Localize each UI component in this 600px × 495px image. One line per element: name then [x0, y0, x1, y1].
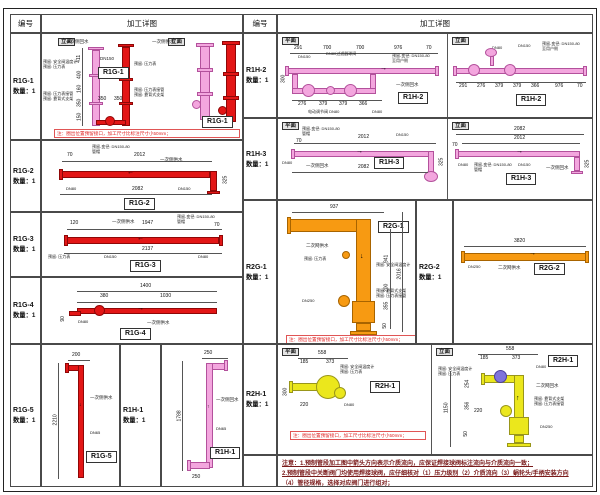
dimension-text: 50 [383, 323, 389, 329]
part-qty: 数量：1 [246, 159, 276, 168]
valve-icon [326, 86, 335, 95]
part-number-box: R1H-2 [516, 94, 546, 106]
dimension-text: 366 [359, 102, 367, 108]
flange-icon [453, 66, 457, 76]
pipe-segment [78, 365, 84, 478]
dimension-text: 379 [319, 102, 327, 108]
annotation-label: DN150 [518, 163, 530, 168]
note-line-2: 2.预制管段中关断阀门均使用焊接球阀，应仔细核对（1）压力级别（2）介质流向（3… [282, 469, 588, 479]
flow-arrow-icon: → [529, 250, 536, 258]
pipe-segment [514, 435, 524, 443]
flange-icon [223, 72, 239, 76]
dimension-text: 2082 [132, 187, 143, 193]
part-id: R1H-3 [246, 151, 276, 158]
dimension-line [447, 119, 448, 200]
part-id: R1G-3 [13, 236, 40, 243]
dimension-text: 350 [98, 97, 106, 103]
part-id: R1G-2 [13, 168, 40, 175]
dimension-text: 325 [223, 176, 229, 184]
drawing-sheet: 编号 加工详图 编号 加工详图 R1G-1 数量：1 立面立面一次侧回水一次侧供… [0, 0, 600, 495]
annotation-label: 电动调节阀 DN80 [308, 110, 339, 115]
dimension-text: 70 [426, 46, 432, 52]
annotation-label: 一次侧供水 [160, 157, 183, 162]
header-no-right: 编号 [243, 14, 277, 33]
pipe-segment [509, 417, 529, 435]
dimension-line [456, 82, 586, 83]
part-id: R2H-1 [246, 391, 276, 398]
flange-icon [64, 235, 68, 246]
dimension-line [62, 161, 212, 162]
part-number-box: R2G-2 [534, 263, 565, 275]
warning-note: 注：圈出位置预留接口，加工尺寸比标注尺寸小50mm； [54, 129, 240, 138]
flow-arrow-icon: ↑ [207, 405, 210, 411]
valve-icon [500, 405, 512, 417]
part-qty: 数量：1 [13, 244, 40, 253]
dimension-text: 400 [77, 71, 83, 79]
row-label-r1h1: R1H-1 数量：1 [120, 344, 161, 487]
dimension-text: 276 [298, 102, 306, 108]
warning-note: 注：圈出位置预留接口，加工尺寸比标注尺寸小50mm； [286, 335, 416, 344]
dimension-text: 1947 [142, 221, 153, 227]
dimension-text: DN80 [66, 187, 76, 192]
part-qty: 数量：1 [13, 176, 40, 185]
view-tag: 平面 [282, 122, 299, 130]
dimension-text: DN80 [78, 320, 88, 325]
row-label-r1g4: R1G-4 数量：1 [10, 277, 41, 344]
dimension-text: 558 [318, 351, 326, 357]
flow-arrow-icon: ↑ [516, 395, 520, 403]
annotation-label: 预留-变径: DN150-80 管帽 [177, 215, 215, 224]
dimension-text: 2082 [514, 127, 525, 133]
dimension-text: 250 [192, 475, 200, 481]
flange-icon [435, 66, 439, 76]
pipe-segment [294, 151, 434, 157]
annotation-label: 预留: 靠背式支架 预留: 压力表接管 [534, 397, 564, 406]
part-qty: 数量：1 [13, 86, 40, 95]
dimension-text: 700 [356, 46, 364, 52]
valve-icon [105, 116, 115, 126]
flange-icon [118, 44, 134, 47]
pipe-segment [69, 311, 81, 316]
dimension-text: 70 [214, 223, 220, 229]
part-id: R1H-1 [123, 407, 160, 414]
valve-icon [218, 106, 227, 115]
part-qty: 数量：1 [246, 272, 276, 281]
row-label-r1h3: R1H-3 数量：1 [243, 118, 277, 200]
dimension-text: 373 [326, 360, 334, 366]
dimension-text: 200 [72, 353, 80, 359]
flange-icon [223, 96, 239, 100]
part-number-box: R2G-1 [378, 221, 409, 233]
annotation-label: 一次侧供水 [147, 320, 170, 325]
pipe-segment [464, 253, 586, 261]
part-number-box: R1G-1 [98, 67, 129, 79]
annotation-label: 预留: 压力表 [304, 257, 326, 262]
valve-icon [192, 100, 201, 109]
dimension-text: 2012 [134, 153, 145, 159]
dimension-text: 941 [384, 255, 390, 263]
flange-icon [65, 363, 69, 373]
row-label-r2g2: R2G-2 数量：1 [416, 200, 453, 344]
dimension-text: 2082 [358, 165, 369, 171]
dimension-line [292, 212, 384, 213]
dimension-text: 1788 [178, 410, 184, 421]
flange-icon [224, 360, 228, 371]
dimension-text: DN150 [178, 187, 190, 192]
annotation-label: 一次侧供水 [152, 39, 175, 44]
dimension-text: 300 [283, 388, 289, 396]
detail-cell-r2h1: 平面558185373预留: 安全阀温度计 预留: 压力表300220DN80R… [277, 344, 593, 455]
flange-icon [222, 41, 240, 45]
part-qty: 数量：1 [246, 75, 276, 84]
part-number-box: R1G-4 [120, 328, 151, 340]
part-qty: 数量：1 [13, 415, 40, 424]
valve-icon [94, 305, 105, 316]
dimension-text: 355 [384, 302, 390, 310]
annotation-label: 一次侧供水 [90, 395, 113, 400]
dimension-text: 160 [77, 85, 83, 93]
pipe-segment [210, 171, 217, 191]
annotation-label: DN250 [540, 425, 552, 430]
annotation-label: 预留: 压力表 [48, 255, 70, 260]
annotation-label: 一次侧回水 [66, 39, 89, 44]
dimension-text: 379 [495, 84, 503, 90]
valve-icon [468, 64, 480, 76]
dimension-text: 185 [480, 356, 488, 362]
part-number-box: R1G-1 [202, 116, 233, 128]
flow-arrow-icon: → [516, 148, 523, 156]
annotation-label: 一次侧供水 [112, 219, 135, 224]
dimension-text: DN150 [104, 255, 116, 260]
notes-empty-cell [243, 455, 277, 487]
general-notes: 注意：1.预制管段加工图中箭头方向表示介质流向，应保证焊接球阀标注流向与介质流向… [277, 455, 593, 487]
annotation-label: 预留: 压力表接管 预留: 靠背式支架 [43, 92, 73, 101]
view-tag: 立面 [436, 348, 453, 356]
annotation-label: DN80过滤器球阀 [326, 52, 356, 57]
detail-cell-r1g3: 120194770预留-变径: DN150-80 管帽一次侧供水←预留: 压力表… [41, 212, 243, 277]
dimension-text: 350 [77, 99, 83, 107]
part-number-box: R1G-3 [130, 260, 161, 272]
detail-cell-r1g2: 预留-变径: DN150-80 管帽702012←一次侧供水DN802082DN… [41, 140, 243, 212]
valve-icon [485, 48, 497, 57]
dimension-text: DN80 [198, 255, 208, 260]
detail-cell-r1g5: 2002210一次侧供水↓DN65R1G-5 [41, 344, 120, 487]
valve-icon [338, 295, 350, 307]
valve-icon [504, 64, 516, 76]
flange-icon [287, 217, 291, 234]
flange-icon [583, 66, 587, 76]
part-id: R2G-2 [419, 264, 452, 271]
flange-icon [219, 235, 223, 246]
flange-icon [507, 443, 531, 447]
dimension-text: 2137 [142, 247, 153, 253]
annotation-label: DN150 [396, 133, 408, 138]
dimension-text: 70 [577, 84, 583, 90]
part-number-box: R1H-1 [210, 447, 240, 459]
annotation-label: 一次侧回水 [396, 82, 419, 87]
row-label-r1g1: R1G-1 数量：1 [10, 33, 41, 140]
flange-icon [187, 460, 191, 471]
dimension-text: 373 [512, 356, 520, 362]
dimension-text: 350 [114, 97, 122, 103]
header-no-left-label: 编号 [18, 18, 33, 29]
dimension-line [202, 358, 228, 359]
header-no-left: 编号 [10, 14, 41, 33]
pipe-segment [428, 151, 434, 173]
dimension-text: 1400 [140, 284, 151, 290]
dimension-text: 50 [464, 431, 470, 437]
annotation-label: 预留: 安全阀温度计 预留: 压力表 [340, 365, 374, 374]
detail-cell-r2g2: 3820→DN250二次网供水R2G-2 [453, 200, 593, 344]
pipe-segment [356, 219, 371, 307]
flow-arrow-icon: ← [127, 169, 134, 177]
dimension-text: 411 [77, 55, 83, 63]
pipe-segment [288, 68, 436, 74]
annotation-label: DN80 [536, 365, 546, 370]
annotation-label: DN150 [298, 55, 310, 60]
part-qty: 数量：1 [13, 310, 40, 319]
annotation-label: 预留-变径: DN150-80 管帽 [302, 127, 340, 136]
dimension-text: 3820 [514, 239, 525, 245]
dimension-text: 200 [384, 284, 390, 292]
annotation-label: 预留: 安全阀温度计 [376, 263, 410, 268]
dimension-text: 976 [394, 46, 402, 52]
dimension-line [77, 291, 217, 292]
part-qty: 数量：1 [246, 399, 276, 408]
dimension-line [431, 345, 432, 455]
warning-note: 注：圈出位置预留接口，加工尺寸比标注尺寸小50mm； [290, 431, 426, 440]
dimension-line [60, 194, 212, 195]
flow-arrow-icon: → [137, 305, 144, 313]
dimension-line [67, 229, 222, 230]
detail-cell-r1g1: 立面立面一次侧回水一次侧供水DN150预留: 安全阀温度计 预留: 压力表预留:… [41, 33, 243, 140]
flange-icon [88, 47, 104, 50]
dimension-text: 254 [465, 380, 471, 388]
part-qty: 数量：1 [123, 415, 160, 424]
flange-icon [59, 169, 63, 180]
dimension-line [464, 246, 586, 247]
valve-icon [342, 251, 350, 259]
dimension-text: 379 [339, 102, 347, 108]
annotation-label: 预留: 压力表接管 预留: 靠背式支架 [134, 88, 164, 97]
flow-arrow-icon: ↓ [79, 403, 82, 409]
annotation-label: 预留-变径: DN150-80 管帽 [474, 163, 512, 172]
annotation-label: 二次网供水 [306, 243, 329, 248]
part-number-box: R1G-5 [86, 451, 117, 463]
annotation-label: 一次侧回水 [546, 165, 569, 170]
annotation-label: DN80 [372, 110, 382, 115]
dimension-text: 380 [100, 294, 108, 300]
note-line-3: （4）管径规格，选择对应阀门进行组对； [282, 479, 588, 487]
dimension-text: 558 [506, 347, 514, 353]
dimension-text: 276 [477, 84, 485, 90]
dimension-line [68, 360, 90, 361]
header-detail-left: 加工详图 [41, 14, 243, 33]
part-number-box: R1H-2 [398, 92, 428, 104]
part-id: R1G-4 [13, 302, 40, 309]
valve-icon [494, 370, 507, 383]
detail-cell-r1g4: 14003801030→90DN80一次侧供水R1G-4 [41, 277, 243, 344]
annotation-label: 二次网供水 [498, 265, 521, 270]
flange-icon [197, 92, 213, 96]
part-qty: 数量：1 [419, 272, 452, 281]
flow-arrow-icon: ← [137, 235, 144, 243]
dimension-text: 2016 [398, 268, 404, 279]
annotation-label: 预留: 压力表 [134, 62, 156, 67]
dimension-line [447, 34, 448, 118]
dimension-text: 2012 [514, 136, 525, 142]
view-tag: 平面 [282, 348, 299, 356]
annotation-label: 预留-变径: DN150-80 管帽 [92, 145, 130, 154]
row-label-r1g2: R1G-2 数量：1 [10, 140, 41, 212]
flange-icon [197, 68, 213, 72]
dimension-text: 291 [294, 46, 302, 52]
header-detail-left-label: 加工详图 [127, 18, 157, 29]
dimension-text: 976 [555, 84, 563, 90]
dimension-text: 325 [439, 158, 445, 166]
part-number-box: R1G-2 [124, 198, 155, 210]
dimension-text: 291 [459, 84, 467, 90]
detail-cell-r1h1: 2501788一次侧回水↑DN65250R1H-1 [161, 344, 243, 487]
pipe-segment [292, 383, 318, 391]
annotation-label: 预留-变径: DN150-80 至用户侧 [542, 42, 580, 51]
part-number-box: R1H-3 [374, 157, 404, 169]
row-label-r2g1: R2G-1 数量：1 [243, 200, 277, 344]
annotation-label: DN80 [458, 163, 468, 168]
part-number-box: R1H-3 [506, 173, 536, 185]
annotation-label: DN250 [302, 299, 314, 304]
part-id: R1G-1 [13, 78, 40, 85]
flange-icon [289, 381, 293, 393]
dimension-text: 2210 [54, 414, 60, 425]
pipe-segment [490, 56, 494, 66]
dimension-text: 70 [67, 153, 73, 159]
dimension-text: 1150 [445, 402, 451, 413]
dimension-text: 185 [300, 360, 308, 366]
detail-cell-r1h3: 平面预留-变径: DN150-80 管帽702012DN150→DN80一次侧回… [277, 118, 593, 200]
annotation-label: 预留-变径: DN150-80 至用户侧 [392, 54, 430, 63]
dimension-line [294, 143, 436, 144]
dimension-text: 250 [204, 351, 212, 357]
dimension-text: 937 [330, 205, 338, 211]
pipe-segment [356, 323, 371, 331]
pipe-segment [190, 462, 210, 469]
view-tag: 立面 [452, 122, 469, 130]
annotation-label: 一次侧回水 [306, 163, 329, 168]
dimension-text: 356 [465, 402, 471, 410]
flange-icon [585, 251, 589, 263]
annotation-label: DN250 [468, 265, 480, 270]
pipe-segment [574, 157, 580, 171]
flow-arrow-icon: ↓ [360, 253, 364, 261]
annotation-label: DN150 [100, 56, 114, 61]
flange-icon [455, 149, 459, 159]
part-id: R1H-2 [246, 67, 276, 74]
part-number-box: R2H-1 [370, 381, 400, 393]
header-detail-right: 加工详图 [277, 14, 593, 33]
dimension-text: DN65 [216, 427, 226, 432]
dimension-text: 220 [474, 409, 482, 415]
row-label-r1h2: R1H-2 数量：1 [243, 33, 277, 118]
flow-arrow-icon: → [356, 148, 363, 156]
flange-icon [461, 251, 465, 263]
pipe-segment [226, 44, 236, 122]
pipe-segment [200, 46, 210, 120]
header-detail-right-label: 加工详图 [420, 18, 450, 29]
part-id: R1G-5 [13, 407, 40, 414]
annotation-label: 二次网回水 [536, 383, 559, 388]
header-no-right-label: 编号 [253, 18, 268, 29]
dimension-text: 300 [281, 75, 287, 83]
valve-icon [334, 387, 346, 399]
dimension-text: 325 [585, 160, 591, 168]
pipe-segment [62, 171, 210, 178]
annotation-label: DN80 [282, 161, 292, 166]
dimension-text: 379 [513, 84, 521, 90]
valve-icon [344, 84, 357, 97]
row-label-r1g3: R1G-3 数量：1 [10, 212, 41, 277]
flow-arrow-icon: → [380, 65, 387, 73]
flange-icon [571, 171, 583, 174]
pipe-segment [122, 47, 130, 126]
row-label-r2h1: R2H-1 数量：1 [243, 344, 277, 455]
dimension-line [462, 143, 580, 144]
pipe-segment [92, 50, 100, 126]
dimension-text: 70 [452, 143, 458, 149]
dimension-line [292, 172, 428, 173]
part-id: R2G-1 [246, 264, 276, 271]
dimension-text: 366 [531, 84, 539, 90]
pipe-segment [352, 301, 375, 323]
flange-icon [481, 373, 485, 385]
dimension-text: 120 [70, 221, 78, 227]
annotation-label: 预留: 安全阀温度计 预留: 压力表 [438, 367, 472, 376]
detail-cell-r2g1: 937R2G-1二次网供水↓预留: 压力表预留: 安全阀温度计预留: 靠背式支架… [277, 200, 416, 344]
view-tag: 立面 [452, 37, 469, 45]
detail-cell-r1h2: 平面29170070097670DN150DN80过滤器球阀预留-变径: DN1… [277, 33, 593, 118]
annotation-label: 预留: 安全阀温度计 预留: 压力表 [43, 60, 77, 69]
valve-icon [302, 84, 315, 97]
dimension-text: 1030 [160, 294, 171, 300]
dimension-line [390, 229, 391, 329]
dimension-text: 150 [77, 113, 83, 121]
row-label-r1g5: R1G-5 数量：1 [10, 344, 41, 487]
part-number-box: R2H-1 [548, 355, 578, 367]
annotation-label: DN150 [518, 44, 530, 49]
dimension-text: 220 [300, 403, 308, 409]
flange-icon [196, 43, 214, 47]
dimension-line [77, 302, 217, 303]
annotation-label: 一次侧回水 [216, 397, 239, 402]
dimension-text: DN65 [90, 431, 100, 436]
annotation-label: DN80 [344, 403, 354, 408]
dimension-text: 2012 [358, 135, 369, 141]
flange-icon [291, 149, 295, 159]
note-line-1: 注意：1.预制管段加工图中箭头方向表示介质流向，应保证焊接球阀标注流向与介质流向… [282, 459, 588, 469]
dimension-text: 90 [61, 316, 67, 322]
